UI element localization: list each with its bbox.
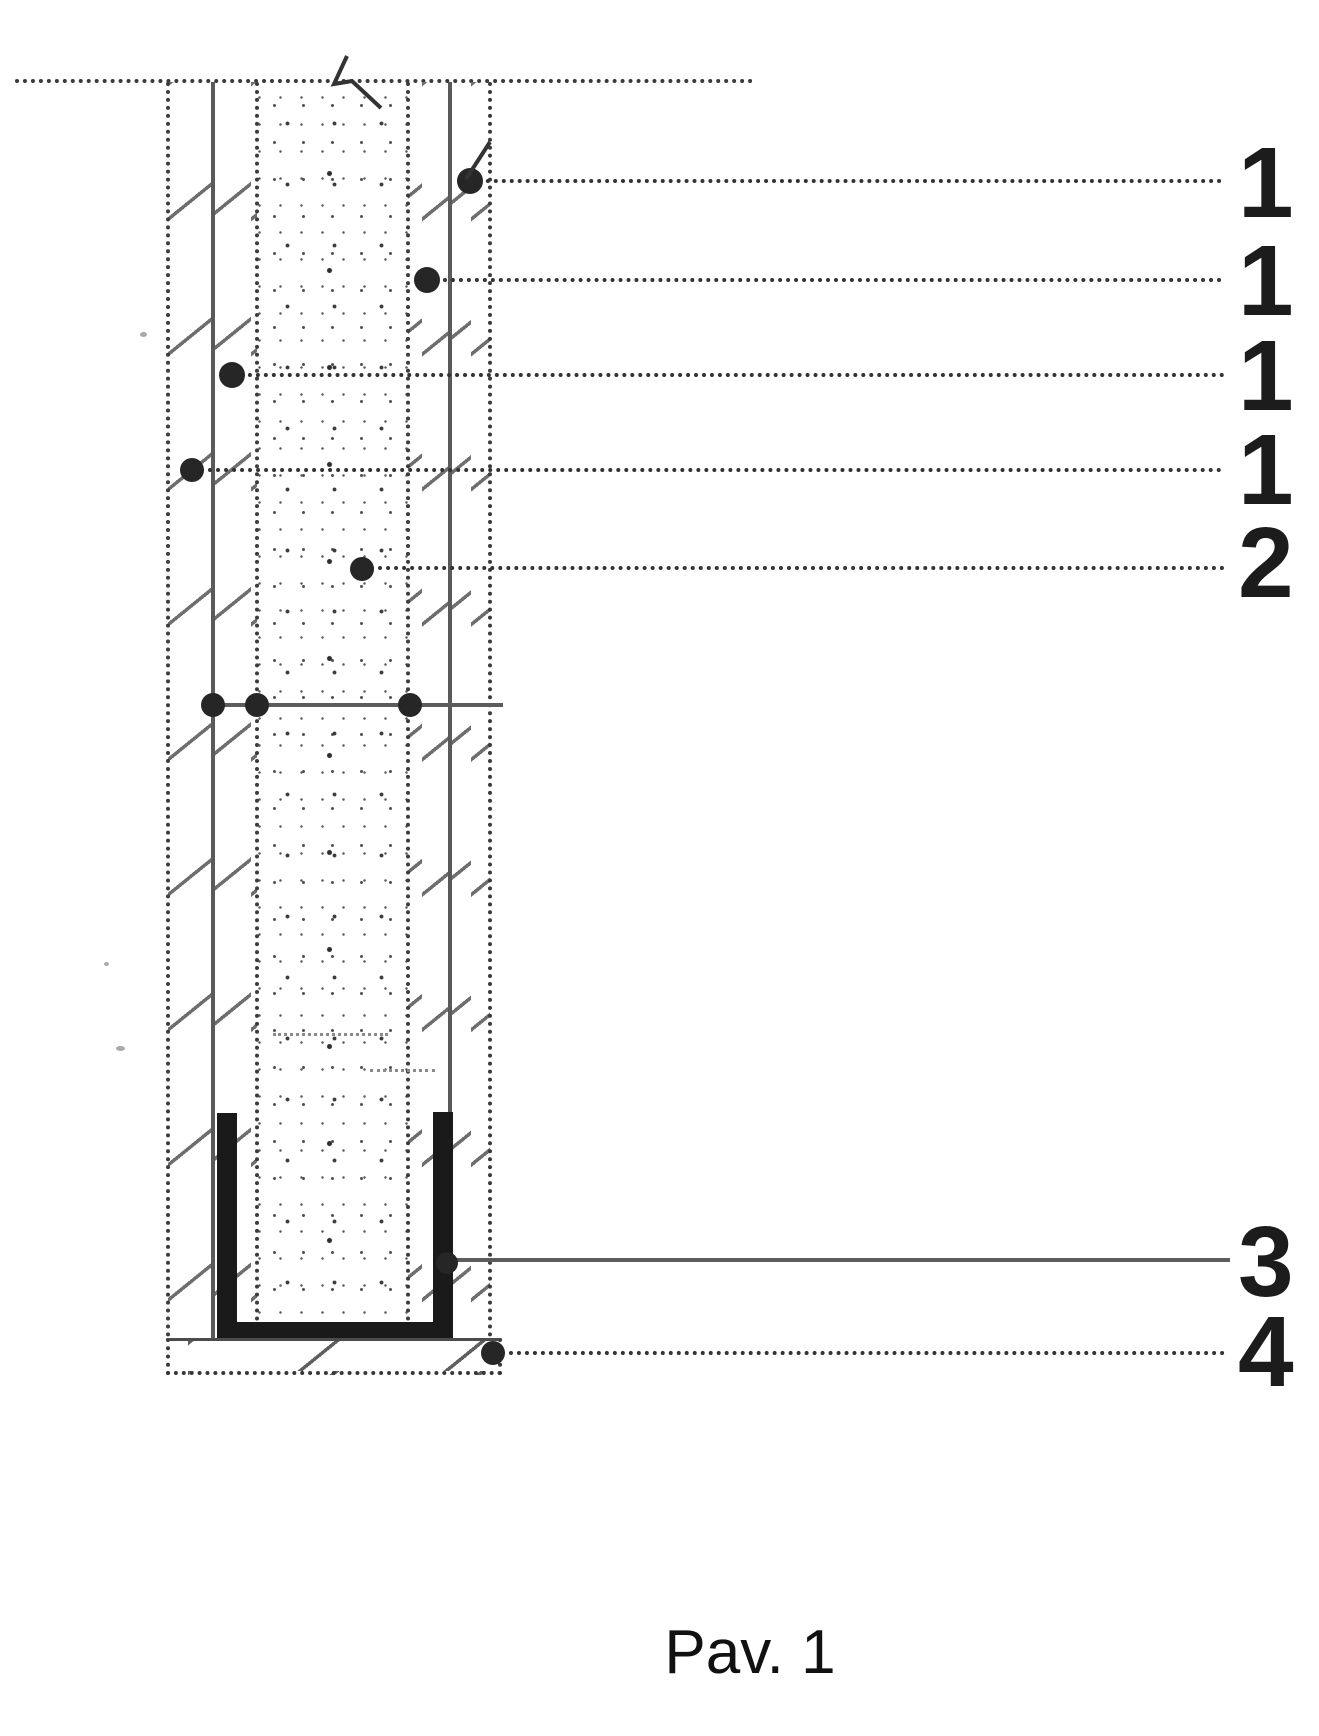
patent-figure-page: 1 1 1 1 2 3 4 Pav. 1 xyxy=(0,0,1319,1736)
ref-label-1: 1 xyxy=(1238,133,1319,233)
ref-label-4: 4 xyxy=(1238,1302,1319,1402)
figure-caption: Pav. 1 xyxy=(600,1622,900,1684)
leader-hook-mark xyxy=(466,142,490,179)
ref-label-2: 2 xyxy=(1238,513,1319,613)
drawing-marks-overlay xyxy=(0,0,1319,1736)
ref-label-1: 1 xyxy=(1238,326,1319,426)
ref-label-1: 1 xyxy=(1238,231,1319,331)
break-mark xyxy=(334,56,381,108)
ref-label-1: 1 xyxy=(1238,420,1319,520)
